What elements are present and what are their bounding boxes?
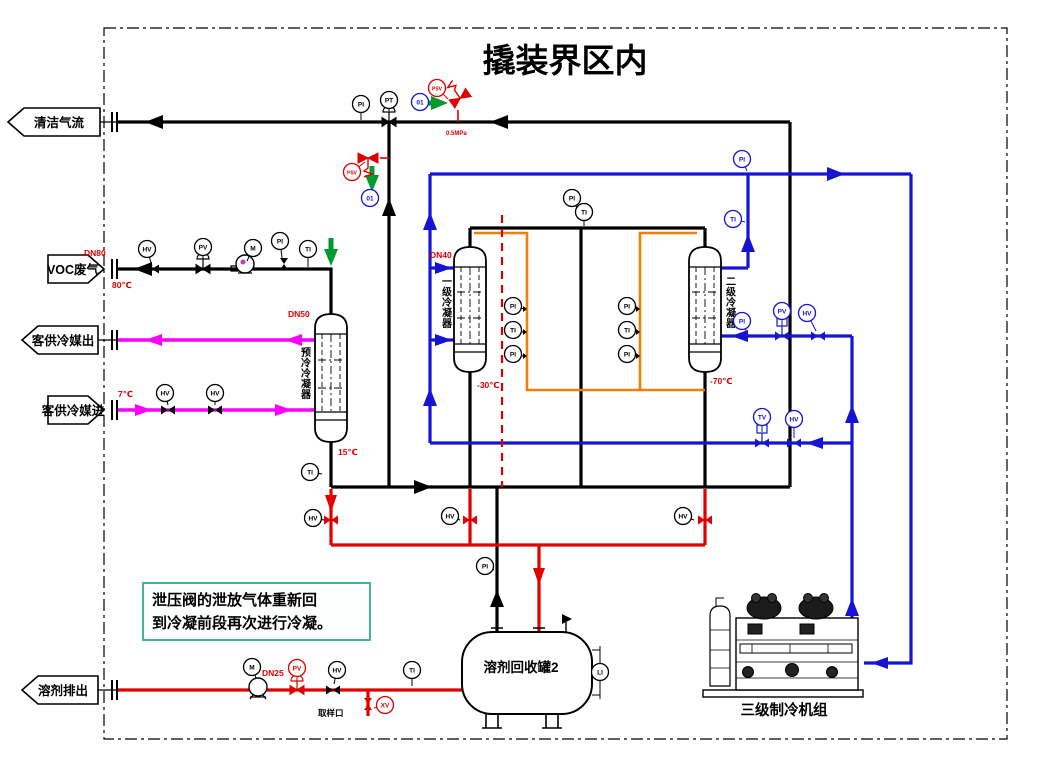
svg-text:HV: HV — [678, 513, 688, 520]
label-sample-port: 取样口 — [318, 708, 344, 718]
svg-text:PSV: PSV — [347, 170, 358, 176]
instrument-tag-PI: PI — [619, 346, 638, 363]
vessel-precooler — [315, 314, 347, 442]
instrument-tag-PI: PI — [272, 233, 289, 259]
instrument-tag-PV: PV — [774, 303, 791, 327]
label-relief-set: 0.5MPa — [446, 131, 467, 137]
svg-text:01: 01 — [416, 99, 424, 106]
instrument-tag-PV: PV — [195, 239, 212, 260]
svg-text:PI: PI — [569, 195, 575, 202]
instrument-tag-HV: HV — [786, 411, 803, 439]
svg-text:PI: PI — [358, 101, 364, 108]
svg-text:PSV: PSV — [432, 86, 443, 92]
instrument-tag-M: M — [244, 659, 261, 679]
instrument-tag-HV: HV — [442, 508, 461, 525]
svg-text:PI: PI — [739, 156, 745, 163]
label-t30: -30℃ — [477, 380, 500, 390]
instrument-tag-HV: HV — [157, 385, 174, 406]
instrument-tag-PI: PI — [619, 298, 638, 315]
svg-text:HV: HV — [210, 390, 220, 397]
instrument-tag-TI: TI — [505, 322, 525, 339]
note-line2: 到冷凝前段再次进行冷凝。 — [152, 614, 332, 632]
pid-diagram: 撬装界区内 — [0, 0, 1050, 767]
label-dn50: DN50 — [288, 309, 310, 319]
svg-text:M: M — [249, 664, 254, 671]
svg-text:HV: HV — [445, 513, 455, 520]
instrument-tag-TI: TI — [300, 241, 317, 268]
vessel-condenser2 — [689, 247, 721, 372]
svg-text:PI: PI — [739, 318, 745, 325]
svg-text:TV: TV — [758, 414, 767, 421]
instrument-tag-PSV: PSV — [344, 162, 366, 181]
svg-text:HV: HV — [142, 246, 152, 253]
label-voc-inlet: VOC废气 — [47, 262, 100, 277]
label-t15: 15℃ — [338, 447, 358, 457]
instrument-tag-TI: TI — [302, 464, 323, 481]
label-coolant-out: 客供冷媒出 — [31, 333, 95, 348]
label-tank: 溶剂回收罐2 — [483, 659, 558, 675]
svg-text:HV: HV — [802, 310, 812, 317]
instrument-tag-PI: PI — [734, 151, 751, 172]
instrument-tag-PI: PI — [353, 96, 370, 121]
voc-inlet-line — [118, 269, 331, 314]
svg-text:TI: TI — [409, 667, 415, 674]
svg-text:PI: PI — [624, 303, 630, 310]
instrument-tag-HV: HV — [675, 508, 695, 525]
svg-text:PI: PI — [510, 351, 516, 358]
svg-text:PI: PI — [624, 351, 630, 358]
instrument-tag-TI: TI — [725, 211, 746, 228]
svg-text:HV: HV — [308, 515, 318, 522]
boundary-flanges — [112, 112, 117, 700]
svg-text:PV: PV — [199, 244, 208, 251]
svg-text:PI: PI — [277, 238, 283, 245]
instrument-tag-TI: TI — [404, 662, 421, 687]
label-condenser1: 一级冷凝器 — [441, 277, 453, 330]
label-solvent-out: 溶剂排出 — [38, 683, 88, 698]
svg-text:HV: HV — [160, 390, 170, 397]
svg-text:PI: PI — [482, 563, 488, 570]
chiller-unit — [703, 594, 863, 698]
svg-text:PT: PT — [385, 97, 393, 104]
diagram-title: 撬装界区内 — [483, 42, 648, 79]
vessel-condenser1 — [454, 247, 486, 372]
svg-text:HV: HV — [789, 416, 799, 423]
svg-text:01: 01 — [366, 195, 374, 202]
label-chiller: 三级制冷机组 — [741, 701, 828, 719]
instrument-tag-HV: HV — [799, 305, 817, 332]
instrument-tag-PI: PI — [734, 313, 751, 334]
label-dn40: DN40 — [430, 250, 452, 260]
svg-text:TI: TI — [624, 327, 630, 334]
instrument-tag-TI: TI — [619, 322, 638, 339]
instrument-tag-TI: TI — [576, 204, 593, 227]
instrument-tag-HV: HV — [139, 241, 156, 267]
svg-text:TI: TI — [307, 469, 313, 476]
svg-text:TI: TI — [730, 216, 736, 223]
label-precooler: 预冷冷凝器 — [300, 347, 312, 401]
label-dn80: DN80 — [84, 248, 106, 258]
instrument-tag-HV: HV — [305, 510, 325, 527]
svg-text:TI: TI — [581, 209, 587, 216]
note-box: 泄压阀的泄放气体重新回 到冷凝前段再次进行冷凝。 — [143, 583, 370, 640]
svg-text:PV: PV — [778, 308, 787, 315]
svg-text:LI: LI — [597, 669, 603, 676]
svg-text:XV: XV — [381, 702, 390, 709]
svg-text:M: M — [250, 245, 255, 252]
label-coolant-in: 客供冷媒进 — [41, 403, 105, 418]
label-t7: 7℃ — [118, 389, 133, 399]
instrument-tag-HV: HV — [207, 385, 224, 406]
diagram-canvas: 撬装界区内 — [0, 0, 1050, 767]
instrument-tag-TV: TV — [754, 409, 771, 433]
label-t80: 80℃ — [112, 280, 132, 290]
svg-text:PV: PV — [293, 665, 302, 672]
instrument-tag-HV: HV — [329, 662, 346, 685]
instrument-tag-01: 01 — [412, 94, 429, 111]
instrument-tag-PI: PI — [477, 558, 495, 575]
instrument-tag-LI: LI — [592, 664, 609, 681]
note-line1: 泄压阀的泄放气体重新回 — [152, 591, 317, 609]
label-dn25: DN25 — [262, 668, 284, 678]
instrument-tag-PT: PT — [381, 92, 398, 112]
pump-symbol — [249, 678, 267, 699]
instrument-tag-PSV: PSV — [429, 80, 449, 100]
instrument-tag-01: 01 — [362, 190, 379, 207]
instrument-tag-PI: PI — [505, 298, 525, 315]
label-clean-gas: 清洁气流 — [34, 115, 85, 130]
svg-text:TI: TI — [305, 246, 311, 253]
svg-text:TI: TI — [510, 327, 516, 334]
svg-text:PI: PI — [510, 303, 516, 310]
label-t70: -70℃ — [710, 376, 733, 386]
instrument-tag-XV: XV — [374, 697, 394, 714]
instrument-tag-PI: PI — [505, 346, 525, 363]
svg-text:HV: HV — [332, 667, 342, 674]
